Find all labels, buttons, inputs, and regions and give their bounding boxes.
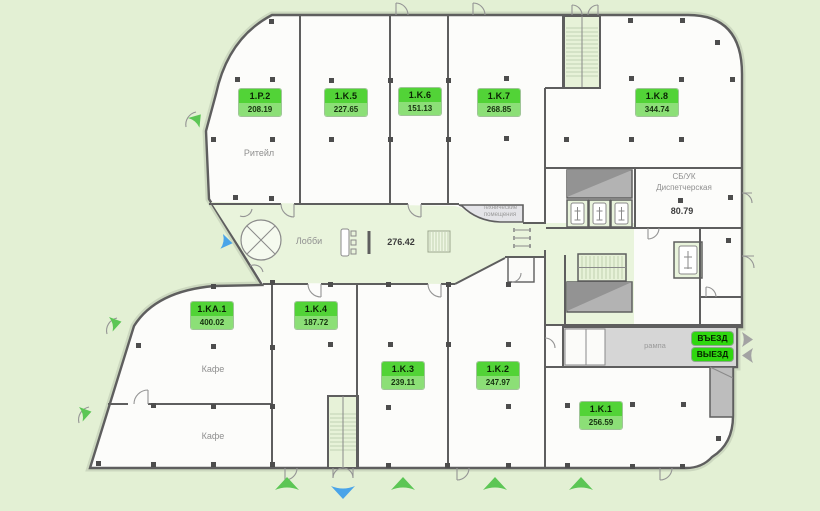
tech-room-label-line2: помещения [470, 212, 530, 218]
room-area: 239.11 [382, 376, 424, 389]
dispatch-area-value: 80.79 [652, 206, 712, 216]
room-label-1k1[interactable]: 1.K.1256.59 [580, 402, 622, 429]
room-code: 1.K.8 [636, 89, 678, 103]
room-label-1p2[interactable]: 1.P.2208.19 [239, 89, 281, 116]
stairs-core-icon [578, 254, 626, 281]
cafe-upper-label: Кафе [183, 364, 243, 374]
room-code: 1.K.3 [382, 362, 424, 376]
stairs-top-icon [564, 16, 600, 88]
lobby-stairs-icon [428, 231, 450, 252]
cafe-lower-label: Кафе [183, 431, 243, 441]
room-area: 247.97 [477, 376, 519, 389]
utility-closet [508, 257, 534, 282]
room-label-1k8[interactable]: 1.K.8344.74 [636, 89, 678, 116]
exit-badge: ВЫЕЗД [692, 348, 733, 361]
room-label-1ka1[interactable]: 1.KA.1400.02 [191, 302, 233, 329]
room-area: 344.74 [636, 103, 678, 116]
room-code: 1.K.6 [399, 88, 441, 102]
room-code: 1.KA.1 [191, 302, 233, 316]
dispatch-label-line1: СБ/УК [654, 172, 714, 181]
room-label-1k6[interactable]: 1.K.6151.13 [399, 88, 441, 115]
room-area: 187.72 [295, 316, 337, 329]
room-code: 1.K.5 [325, 89, 367, 103]
room-area: 227.65 [325, 103, 367, 116]
floor-plan-page: 1.P.2208.19 1.K.5227.65 1.K.6151.13 1.K.… [0, 0, 820, 511]
room-label-1k5[interactable]: 1.K.5227.65 [325, 89, 367, 116]
room-label-1k4[interactable]: 1.K.4187.72 [295, 302, 337, 329]
room-code: 1.K.1 [580, 402, 622, 416]
retail-label: Ритейл [229, 148, 289, 158]
room-code: 1.P.2 [239, 89, 281, 103]
room-code: 1.K.2 [477, 362, 519, 376]
room-label-1k3[interactable]: 1.K.3239.11 [382, 362, 424, 389]
room-label-1k2[interactable]: 1.K.2247.97 [477, 362, 519, 389]
room-area: 208.19 [239, 103, 281, 116]
entry-badge: ВЪЕЗД [692, 332, 733, 345]
room-label-1k7[interactable]: 1.K.7268.85 [478, 89, 520, 116]
tech-room-label-line1: технические [470, 205, 530, 211]
stairs-south-icon [328, 396, 358, 468]
room-area: 400.02 [191, 316, 233, 329]
room-area: 151.13 [399, 102, 441, 115]
lobby-label: Лобби [279, 236, 339, 246]
floor-plan-svg [0, 0, 820, 511]
ramp-label: рампа [625, 341, 685, 350]
room-area: 268.85 [478, 103, 520, 116]
room-code: 1.K.7 [478, 89, 520, 103]
dispatch-label-line2: Диспетчерская [644, 183, 724, 192]
lobby-area-value: 276.42 [381, 237, 421, 247]
room-area: 256.59 [580, 416, 622, 429]
room-code: 1.K.4 [295, 302, 337, 316]
revolving-door-icon [241, 220, 281, 260]
